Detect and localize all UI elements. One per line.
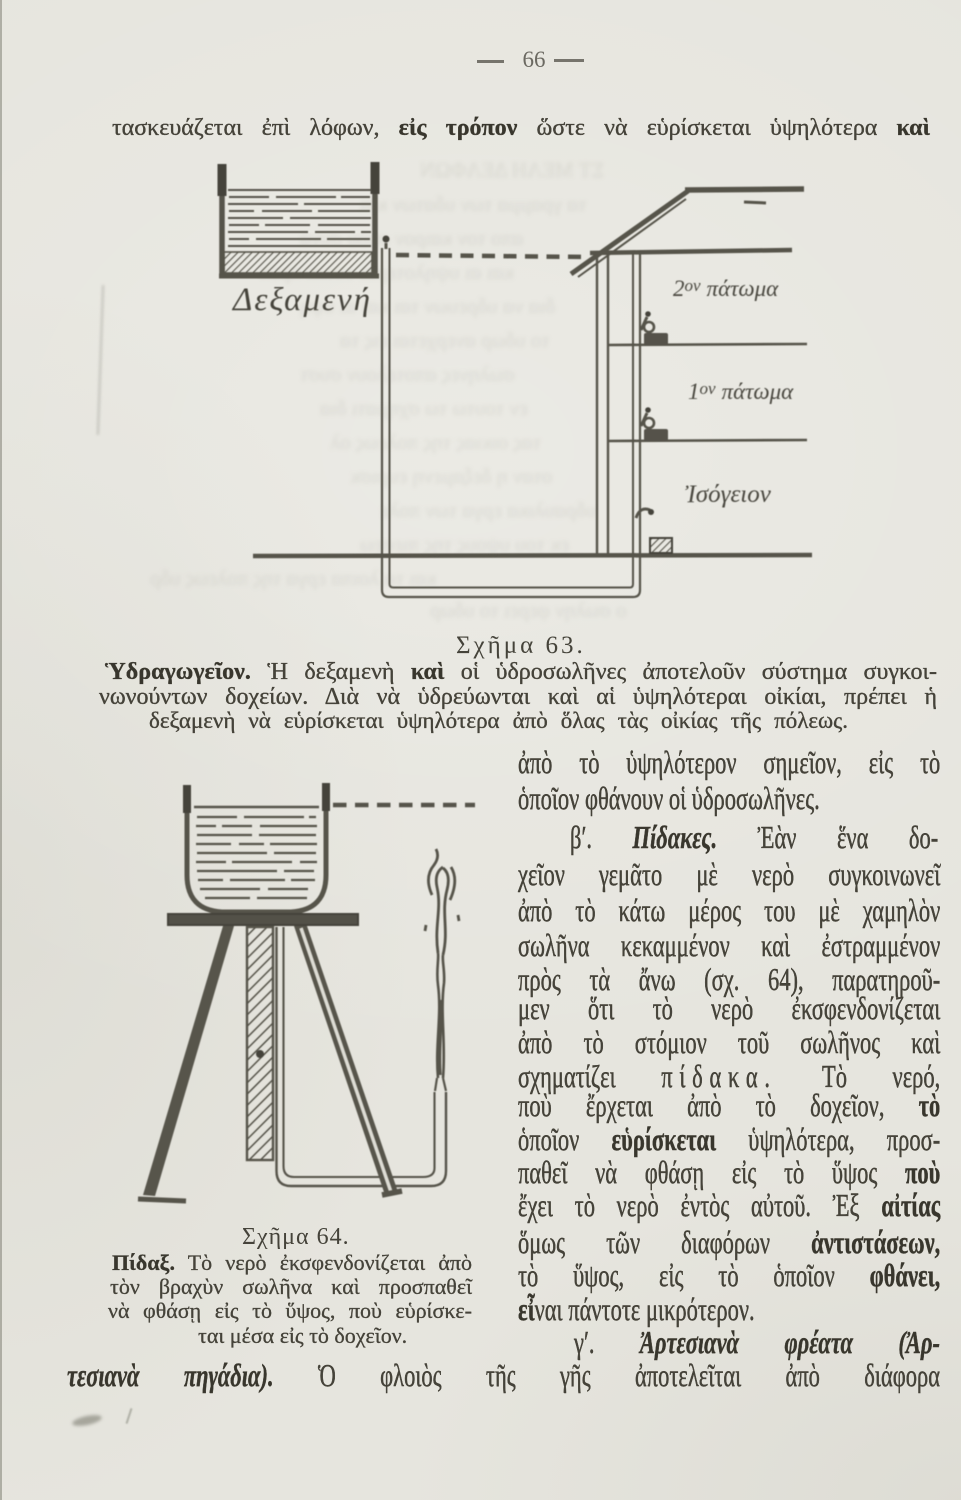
svg-text:2ονπάτωμα: 2ονπάτωμα — [673, 276, 779, 301]
svg-text:Ἰσόγειον: Ἰσόγειον — [685, 481, 772, 508]
svg-text:1ονπάτωμα: 1ονπάτωμα — [688, 379, 794, 404]
